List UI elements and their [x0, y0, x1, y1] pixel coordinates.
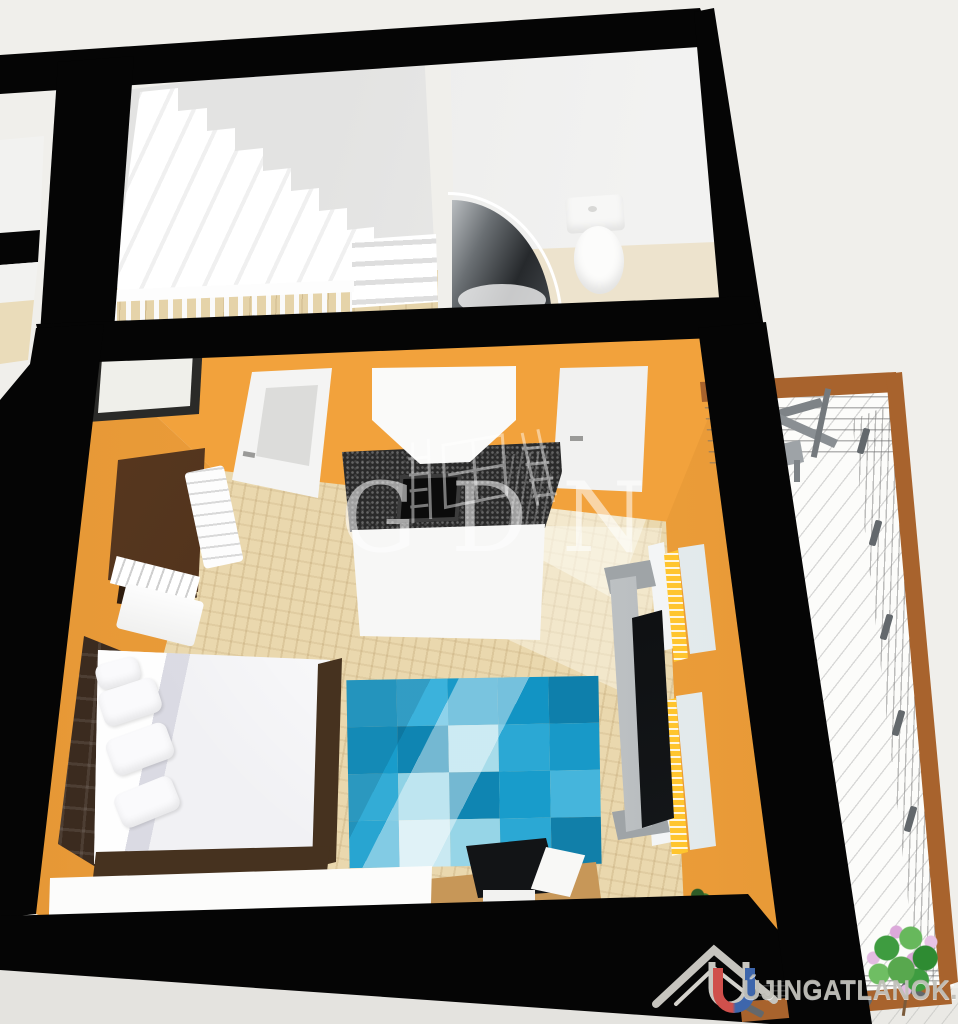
toilet-flush-button	[588, 206, 597, 212]
rug-shadow-overlay	[346, 676, 601, 868]
door-handle	[570, 436, 583, 441]
gdn-watermark-text: GDN	[330, 470, 690, 566]
bench-leg	[794, 460, 800, 482]
site-watermark-text: ÚJINGATLANOK.HU	[742, 974, 958, 1006]
floorplan-render: GDN ÚJINGATLANOK.HU	[0, 0, 958, 1024]
